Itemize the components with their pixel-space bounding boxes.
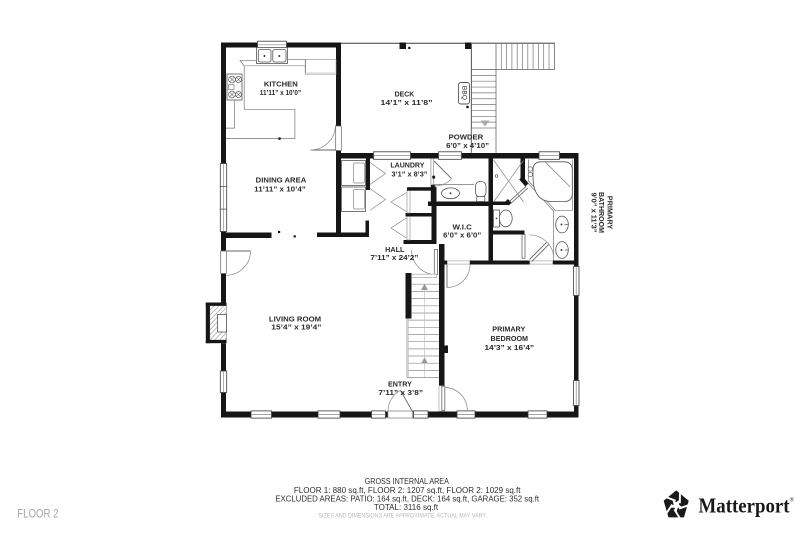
svg-text:9’0” x 11’3”: 9’0” x 11’3” bbox=[590, 193, 599, 233]
svg-text:DINING AREA: DINING AREA bbox=[256, 175, 307, 184]
svg-text:7’11” x 24’2”: 7’11” x 24’2” bbox=[370, 253, 418, 262]
svg-text:3’1” x 8’3”: 3’1” x 8’3” bbox=[392, 169, 428, 178]
svg-text:14’3” x 16’4”: 14’3” x 16’4” bbox=[485, 343, 535, 352]
svg-text:14’1” x 11’8”: 14’1” x 11’8” bbox=[381, 98, 433, 107]
svg-text:GROSS INTERNAL AREA: GROSS INTERNAL AREA bbox=[365, 477, 450, 486]
svg-text:Matterport: Matterport bbox=[699, 493, 791, 517]
svg-text:TOTAL: 3116 sq.ft: TOTAL: 3116 sq.ft bbox=[374, 503, 439, 512]
svg-text:ENTRY: ENTRY bbox=[388, 380, 412, 389]
svg-text:BEDROOM: BEDROOM bbox=[491, 334, 529, 343]
svg-text:6’0” x 4’10”: 6’0” x 4’10” bbox=[446, 141, 489, 150]
svg-text:11’11” x 10’4”: 11’11” x 10’4” bbox=[254, 185, 306, 194]
svg-text:7’11” x 3’8”: 7’11” x 3’8” bbox=[378, 388, 423, 397]
svg-text:EXCLUDED AREAS: PATIO: 164 sq.: EXCLUDED AREAS: PATIO: 164 sq.ft, DECK: … bbox=[275, 494, 540, 503]
svg-text:6’0” x 6’0”: 6’0” x 6’0” bbox=[443, 231, 482, 240]
svg-text:PRIMARY: PRIMARY bbox=[492, 324, 525, 333]
svg-text:SIZES AND DIMENSIONS ARE APPRO: SIZES AND DIMENSIONS ARE APPROXIMATE, AC… bbox=[318, 513, 487, 520]
svg-text:LAUNDRY: LAUNDRY bbox=[390, 161, 424, 170]
svg-text:BBQ: BBQ bbox=[461, 86, 468, 100]
svg-text:KITCHEN: KITCHEN bbox=[264, 79, 298, 88]
svg-text:FLOOR 2: FLOOR 2 bbox=[17, 508, 58, 520]
svg-text:11’11” x 10’0”: 11’11” x 10’0” bbox=[260, 88, 302, 97]
svg-text:15’4” x 19’4”: 15’4” x 19’4” bbox=[271, 323, 322, 332]
svg-text:®: ® bbox=[790, 497, 795, 504]
